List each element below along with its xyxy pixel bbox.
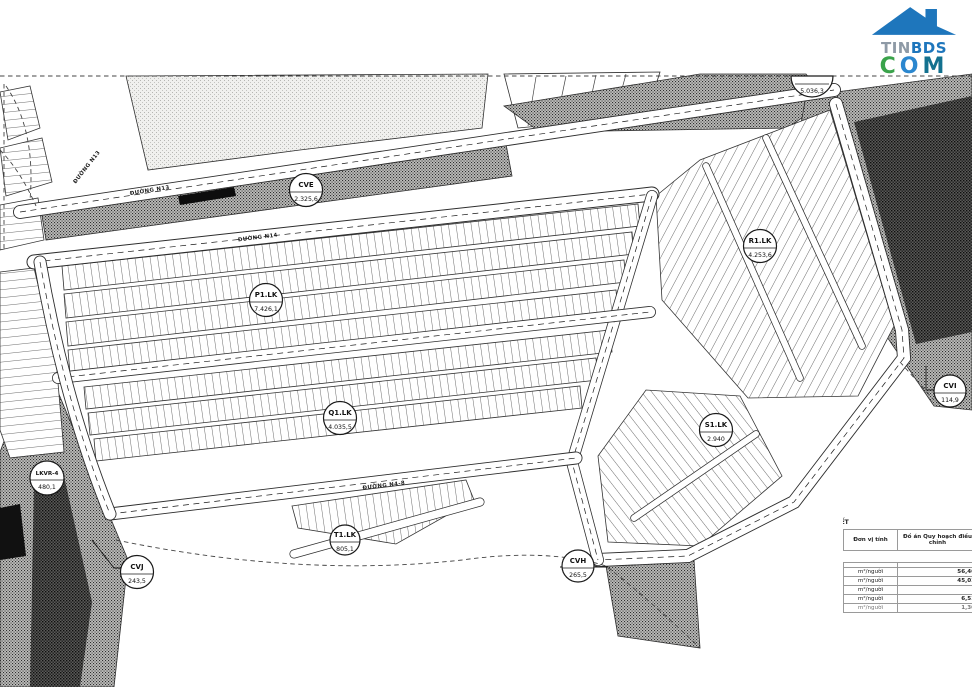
zoning-map: ĐƯỜNG N13 ĐƯỜNG N13 ĐƯỜNG N14 ĐƯỜNG N4-8…: [0, 0, 972, 687]
statistics-table: GT CHI TIẾT Đơn vị tính Đồ án Quy hoạch …: [843, 516, 972, 613]
logo-house-icon: [870, 4, 958, 37]
table-section: ĐẤT: [843, 551, 972, 563]
lot-cluster: [0, 138, 52, 196]
zone-label-r1lk: R1.LK 4.253,6: [744, 230, 777, 263]
row-unit: m²/người: [844, 595, 898, 604]
zone-label-lkvr4: LKVR-4 480,1: [30, 461, 64, 495]
zone-label-cvj: CVJ 243,5: [121, 556, 154, 589]
svg-text:243,5: 243,5: [128, 578, 146, 585]
table-header-unit: Đơn vị tính: [844, 530, 898, 551]
row-value: 6,51: [898, 595, 972, 604]
svg-text:P1.LK: P1.LK: [255, 291, 278, 299]
row-unit: m²/người: [844, 577, 898, 586]
svg-text:4.035,5: 4.035,5: [328, 424, 352, 431]
zone-label-cvh: CVH 265,5: [562, 550, 594, 582]
logo-com-m: M: [922, 54, 948, 79]
house-roof-shape: [872, 7, 956, 35]
road-label-n13-diagonal: ĐƯỜNG N13: [72, 149, 102, 185]
zone-label-p1lk: P1.LK 7.426,1: [250, 284, 283, 317]
svg-text:CVJ: CVJ: [130, 563, 143, 571]
svg-text:R1.LK: R1.LK: [749, 237, 772, 245]
table-row: m²/người 1,30: [843, 604, 972, 613]
svg-text:7.426,1: 7.426,1: [254, 306, 278, 313]
row-value: [898, 586, 972, 595]
table-row: m²/người 45,01: [843, 577, 972, 586]
row-value: 1,30: [898, 604, 972, 613]
table-title: GT CHI TIẾT: [843, 516, 972, 530]
row-unit: m²/người: [844, 568, 898, 577]
zone-label-s1lk: S1.LK 2.940: [700, 414, 733, 447]
svg-text:CVH: CVH: [570, 557, 587, 565]
svg-text:805,1: 805,1: [336, 546, 354, 553]
table-row: m²/người 6,51: [843, 595, 972, 604]
svg-text:265,5: 265,5: [569, 572, 587, 579]
zone-label-cvi: CVI 114,9: [934, 375, 966, 407]
table-row: m²/người 56,46: [843, 568, 972, 577]
lot-column-left: [0, 268, 64, 458]
table-header-plan: Đồ án Quy hoạch điều chỉnh: [898, 530, 972, 551]
svg-text:CVI: CVI: [943, 382, 956, 390]
svg-text:2.325,6: 2.325,6: [294, 196, 318, 203]
svg-text:LKVR-4: LKVR-4: [36, 471, 59, 477]
svg-text:114,9: 114,9: [941, 397, 959, 404]
svg-text:4.253,6: 4.253,6: [748, 252, 772, 259]
logo-text-line2: COM: [864, 56, 964, 78]
row-unit: m²/người: [844, 586, 898, 595]
detail-table: GT CHI TIẾT Đơn vị tính Đồ án Quy hoạch …: [843, 516, 972, 616]
row-value: 45,01: [898, 577, 972, 586]
zone-label-cve: CVE 2.325,6: [290, 174, 323, 207]
svg-text:CVE: CVE: [298, 181, 314, 189]
zone-label-t1lk: T1.LK 805,1: [330, 525, 360, 555]
svg-text:480,1: 480,1: [38, 484, 56, 491]
park-area-cvh: [606, 560, 700, 648]
tinbds-logo: TINBDS COM: [864, 4, 964, 78]
svg-text:5.036,3: 5.036,3: [800, 88, 824, 95]
logo-com-o: O: [900, 54, 923, 79]
lot-cluster: [0, 86, 40, 140]
svg-text:2.940: 2.940: [707, 436, 725, 443]
row-value: 56,46: [898, 568, 972, 577]
svg-text:T1.LK: T1.LK: [334, 531, 357, 539]
table-row: m²/người: [843, 586, 972, 595]
planning-map-screenshot: ĐƯỜNG N13 ĐƯỜNG N13 ĐƯỜNG N14 ĐƯỜNG N4-8…: [0, 0, 972, 687]
logo-com-c: C: [880, 54, 900, 79]
svg-text:Q1.LK: Q1.LK: [328, 409, 352, 417]
zone-label-q1lk: Q1.LK 4.035,5: [324, 402, 357, 435]
row-unit: m²/người: [844, 604, 898, 613]
svg-text:S1.LK: S1.LK: [705, 421, 728, 429]
